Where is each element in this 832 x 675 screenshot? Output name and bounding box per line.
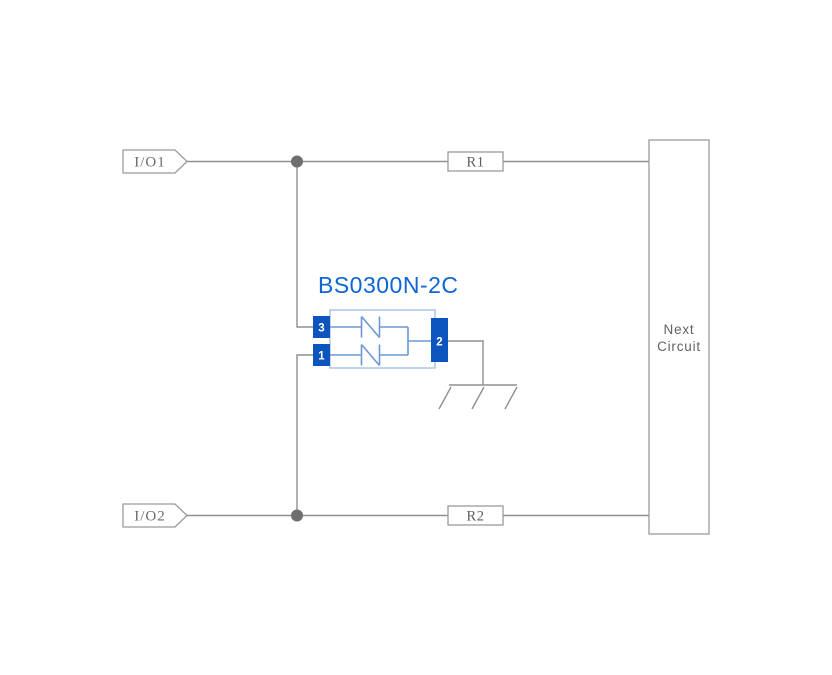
io-tag-2-label: I/O2	[134, 509, 166, 525]
pin-1-number: 1	[318, 351, 325, 363]
next-circuit-body	[649, 140, 709, 534]
pin-3: 3	[313, 316, 330, 338]
component-title: BS0300N-2C	[318, 272, 459, 298]
next-circuit-block: Next Circuit	[649, 140, 709, 534]
junction-dot-bottom	[291, 510, 303, 522]
junction-dot-top	[291, 156, 303, 168]
component-body	[330, 310, 435, 368]
resistor-r2: R2	[448, 506, 503, 525]
circuit-schematic: I/O1 I/O2 R1 R2 Next Circuit BS0300N-2C	[0, 0, 832, 675]
io-tag-1: I/O1	[123, 150, 187, 173]
wire-junction1-to-pin3	[297, 162, 313, 328]
wire-pin2-to-ground	[448, 341, 483, 385]
ground-icon	[439, 385, 517, 409]
resistor-r2-label: R2	[467, 509, 485, 525]
pin-3-number: 3	[318, 323, 324, 335]
tvs-component: BS0300N-2C 3 1	[313, 272, 459, 368]
wire-junction2-to-pin1	[297, 355, 313, 516]
resistor-r1-label: R1	[467, 155, 485, 171]
next-circuit-label-line1: Next	[664, 322, 695, 337]
pin-2-number: 2	[436, 337, 442, 349]
next-circuit-label-line2: Circuit	[657, 339, 701, 354]
resistor-r1: R1	[448, 152, 503, 171]
pin-1: 1	[313, 344, 330, 366]
io-tag-2: I/O2	[123, 504, 187, 527]
pin-2: 2	[431, 318, 448, 362]
io-tag-1-label: I/O1	[134, 155, 166, 171]
schematic-canvas: I/O1 I/O2 R1 R2 Next Circuit BS0300N-2C	[0, 0, 832, 675]
